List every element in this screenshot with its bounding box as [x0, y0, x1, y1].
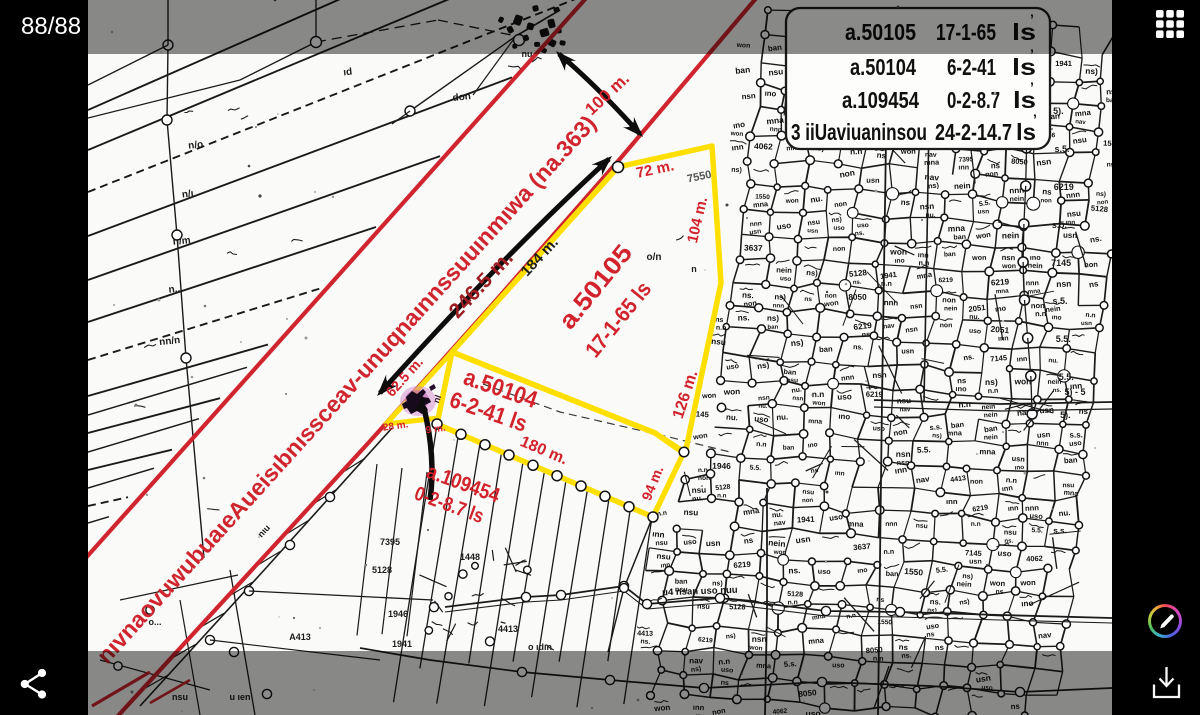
svg-text:5128: 5128: [715, 484, 731, 492]
svg-text:ıd: ıd: [343, 67, 353, 79]
svg-text:uso: uso: [1029, 511, 1043, 521]
svg-text:5128: 5128: [372, 565, 392, 575]
svg-text:5).: 5).: [1060, 410, 1071, 420]
svg-text:non: non: [833, 246, 846, 254]
svg-text:nu.: nu.: [776, 412, 788, 422]
svg-text:mna: mna: [766, 114, 785, 126]
svg-text:mna: mna: [924, 157, 940, 167]
svg-text:ns.: ns.: [1089, 234, 1102, 245]
svg-text:ns: ns: [861, 330, 870, 340]
svg-text:mna: mna: [995, 287, 1009, 295]
svg-text:ns): ns): [985, 377, 998, 387]
svg-text:nnn: nnn: [840, 372, 854, 383]
svg-text:ban: ban: [944, 251, 956, 259]
svg-text:6219: 6219: [733, 560, 752, 570]
svg-text:won: won: [823, 298, 839, 309]
svg-text:usn: usn: [1063, 231, 1078, 240]
svg-text:non: non: [698, 475, 710, 482]
svg-text:ıno: ıno: [857, 567, 868, 575]
svg-text:ınn: ınn: [652, 529, 665, 539]
svg-text:ınn: ınn: [1007, 504, 1018, 513]
svg-text:uso: uso: [818, 566, 832, 576]
svg-text:nsn: nsn: [1002, 253, 1016, 262]
svg-text:n.n: n.n: [1085, 312, 1096, 320]
svg-text:nnn: nnn: [884, 298, 899, 308]
svg-text:6219: 6219: [1054, 182, 1074, 192]
svg-text:ns: ns: [743, 536, 754, 546]
svg-text:won: won: [701, 392, 717, 401]
svg-text:nsn: nsn: [741, 91, 756, 101]
svg-text:nnn: nnn: [1036, 440, 1049, 448]
svg-text:don: don: [452, 91, 471, 104]
svg-text:ınn: ınn: [1001, 483, 1014, 493]
svg-text:nsn: nsn: [872, 370, 887, 380]
svg-text:ns: ns: [1079, 407, 1089, 416]
svg-text:ns.: ns.: [853, 343, 864, 352]
svg-text:6219: 6219: [991, 277, 1010, 287]
svg-text:non: non: [802, 498, 814, 504]
svg-text:ns): ns): [731, 166, 743, 175]
svg-text:uso: uso: [997, 549, 1012, 559]
svg-text:mna: mna: [979, 447, 996, 456]
svg-text:0-2-8.7: 0-2-8.7: [947, 87, 1000, 113]
svg-text:4413: 4413: [637, 629, 653, 638]
svg-text:ns: ns: [1088, 279, 1099, 289]
svg-text:nsu: nsu: [768, 66, 784, 77]
svg-text:uso: uso: [926, 621, 941, 632]
svg-text:usn: usn: [807, 227, 819, 235]
svg-text:5128: 5128: [849, 268, 868, 279]
svg-text:n/ı: n/ı: [181, 188, 194, 200]
svg-text:nnn: nnn: [885, 521, 897, 528]
svg-text:nsn: nsn: [758, 394, 770, 402]
svg-text:ns): ns): [790, 337, 804, 348]
svg-text:nein: nein: [776, 265, 792, 274]
svg-text:ns): ns): [725, 633, 736, 641]
svg-text:nnn: nnn: [1026, 278, 1039, 287]
svg-text:nsu: nsu: [802, 488, 814, 496]
svg-text:’: ’: [1033, 111, 1037, 127]
svg-text:ıno: ıno: [807, 441, 818, 449]
svg-text:4062: 4062: [754, 141, 773, 152]
svg-text:5) - 5: 5) - 5: [1064, 387, 1085, 397]
svg-text:won: won: [773, 549, 787, 556]
svg-text:nsn: nsn: [1036, 156, 1052, 168]
svg-text:nn/n: nn/n: [159, 335, 181, 348]
svg-text:1550: 1550: [1103, 139, 1112, 149]
svg-text:non: non: [985, 171, 998, 179]
svg-text:6219: 6219: [698, 636, 714, 644]
svg-text:ns: ns: [901, 198, 911, 208]
svg-text:A413: A413: [289, 632, 311, 642]
svg-text:ns): ns): [767, 314, 780, 323]
svg-text:mna: mna: [1063, 489, 1079, 498]
svg-text:ns.: ns.: [930, 597, 942, 607]
svg-text:nein: nein: [984, 434, 999, 442]
svg-text:non: non: [1084, 260, 1098, 270]
svg-text:ıno: ıno: [994, 303, 1007, 314]
svg-text:nnn: nnn: [769, 126, 782, 134]
svg-text:5.5.: 5.5.: [935, 564, 948, 574]
svg-text:nsu: nsu: [711, 336, 727, 347]
svg-text:ns): ns): [927, 180, 940, 190]
svg-text:ınn: ınn: [958, 163, 969, 171]
svg-text:ns: ns: [810, 467, 819, 475]
svg-text:nnn: nnn: [772, 302, 784, 310]
svg-text:uso: uso: [726, 362, 740, 372]
svg-text:ınn: ınn: [894, 465, 908, 476]
svg-text:s.s.: s.s.: [929, 422, 942, 432]
svg-text:2051: 2051: [990, 324, 1010, 336]
svg-text:n.n: n.n: [787, 599, 797, 606]
svg-text:mna: mna: [948, 223, 966, 234]
svg-text:ban: ban: [783, 445, 795, 452]
svg-text:nein: nein: [1002, 230, 1020, 240]
svg-text:ınn: ınn: [998, 335, 1009, 343]
svg-text:ıno: ıno: [1051, 314, 1061, 322]
svg-text:nnn: nnn: [750, 220, 762, 228]
svg-text:mna: mna: [753, 199, 770, 209]
svg-text:mna: mna: [947, 428, 963, 437]
svg-text:n.n: n.n: [698, 467, 708, 474]
svg-text:1946: 1946: [388, 609, 408, 619]
svg-text:ns: ns: [995, 589, 1003, 596]
svg-text:4062: 4062: [1026, 554, 1043, 564]
svg-text:1946: 1946: [712, 461, 731, 471]
svg-text:s.5.: s.5.: [1052, 220, 1067, 230]
svg-text:5128: 5128: [1090, 203, 1109, 214]
svg-text:ban: ban: [886, 570, 899, 578]
svg-text:nein: nein: [944, 305, 957, 312]
svg-text:nsu: nsu: [786, 377, 798, 384]
svg-text:won: won: [1001, 263, 1016, 270]
svg-text:uso: uso: [837, 392, 852, 402]
svg-text:uso: uso: [969, 328, 982, 336]
svg-text:nu.: nu.: [692, 493, 704, 503]
svg-text:ıno: ıno: [764, 89, 776, 99]
svg-text:n.n: n.n: [971, 521, 981, 528]
svg-text:nav: nav: [883, 322, 895, 330]
svg-text:won: won: [785, 198, 799, 205]
svg-text:ns): ns): [831, 216, 842, 224]
svg-text:usn: usn: [1037, 430, 1052, 440]
svg-text:won: won: [989, 578, 1006, 588]
svg-text:1941: 1941: [797, 515, 816, 525]
svg-text:nsn: nsn: [1056, 278, 1071, 289]
svg-text:5.5.: 5.5.: [1059, 372, 1074, 382]
svg-text:won: won: [971, 254, 986, 262]
svg-text:n.n: n.n: [716, 325, 727, 332]
svg-text:24-2-14.7: 24-2-14.7: [935, 119, 1012, 145]
svg-text:n.n: n.n: [717, 492, 727, 499]
svg-text:ns: ns: [804, 296, 812, 303]
svg-text:3637: 3637: [744, 242, 763, 252]
svg-text:usn: usn: [795, 533, 811, 545]
svg-text:nav: nav: [773, 519, 786, 527]
svg-text:n.n: n.n: [958, 400, 971, 410]
svg-text:7145: 7145: [965, 548, 982, 558]
svg-text:ns): ns): [756, 360, 770, 371]
svg-text:n: n: [691, 264, 697, 274]
svg-text:6219: 6219: [938, 277, 953, 284]
svg-text:7145: 7145: [990, 353, 1008, 364]
svg-text:nein: nein: [954, 181, 971, 191]
svg-text:usn: usn: [706, 539, 721, 548]
svg-text:4413: 4413: [498, 624, 518, 634]
svg-text:ns.: ns.: [737, 312, 749, 322]
svg-text:5.5.: 5.5.: [1031, 527, 1043, 534]
svg-text:usn: usn: [969, 558, 982, 566]
svg-text:won: won: [729, 130, 743, 138]
svg-text:ınn: ınn: [834, 470, 845, 478]
svg-text:ns): ns): [959, 598, 970, 606]
svg-text:ıno: ıno: [955, 384, 967, 393]
svg-text:ns): ns): [1096, 191, 1106, 199]
svg-text:won: won: [1019, 578, 1036, 588]
svg-text:5.5.: 5.5.: [1056, 334, 1071, 344]
svg-text:nsn: nsn: [910, 303, 923, 311]
svg-text:non: non: [743, 298, 757, 309]
svg-text:n.n: n.n: [988, 388, 999, 396]
svg-text:5).: 5).: [1053, 106, 1064, 116]
svg-text:ıno: ıno: [838, 412, 851, 422]
svg-text:ns: ns: [1042, 187, 1053, 197]
svg-text:nu.: nu.: [1058, 508, 1071, 518]
svg-text:6-2-41: 6-2-41: [947, 54, 996, 80]
svg-text:ınn: ınn: [660, 562, 670, 570]
svg-text:a.109454: a.109454: [842, 87, 919, 113]
svg-text:5128: 5128: [729, 602, 746, 611]
svg-text:nav: nav: [1075, 119, 1087, 126]
svg-text:ns.: ns.: [788, 565, 800, 575]
svg-text:nein: nein: [1009, 195, 1024, 204]
svg-text:nsn: nsn: [792, 395, 804, 403]
svg-text:ns.: ns.: [854, 230, 865, 238]
svg-text:s.5.: s.5.: [1053, 296, 1068, 306]
svg-text:s.s.: s.s.: [1053, 526, 1067, 535]
svg-text:ıno: ıno: [895, 257, 905, 264]
svg-text:’: ’: [1030, 79, 1034, 95]
svg-text:7395: 7395: [380, 537, 400, 547]
svg-text:usn: usn: [1011, 454, 1025, 464]
svg-text:ıno: ıno: [1014, 464, 1024, 472]
svg-text:nsu: nsu: [1004, 527, 1017, 536]
svg-text:mna: mna: [847, 519, 864, 529]
svg-text:ns): ns): [1085, 66, 1098, 77]
svg-text:8050: 8050: [848, 293, 867, 302]
svg-text:ns: ns: [926, 631, 935, 639]
svg-text:mna: mna: [808, 636, 825, 647]
svg-text:n/o: n/o: [188, 139, 204, 152]
svg-text:ban: ban: [953, 234, 966, 242]
svg-text:usn: usn: [901, 346, 914, 355]
svg-text:ban: ban: [819, 344, 833, 354]
svg-text:1941: 1941: [392, 639, 412, 649]
svg-text:1550: 1550: [904, 566, 924, 578]
svg-text:ban: ban: [767, 324, 778, 331]
svg-text:1448: 1448: [460, 552, 480, 562]
svg-text:non: non: [1041, 197, 1052, 204]
svg-text:won: won: [811, 399, 826, 407]
svg-text:ns.: ns.: [963, 352, 975, 362]
svg-text:nav: nav: [1038, 630, 1053, 640]
svg-text:n.n: n.n: [883, 548, 894, 556]
svg-text:ban: ban: [735, 64, 751, 76]
svg-text:non: non: [942, 295, 957, 305]
svg-text:ns): ns): [774, 292, 786, 301]
svg-text:won: won: [723, 387, 741, 397]
svg-text:n.n: n.n: [812, 389, 825, 399]
svg-text:nsu: nsu: [683, 508, 698, 518]
svg-text:nu.: nu.: [726, 413, 738, 423]
svg-text:mna: mna: [1074, 108, 1091, 119]
svg-text:nein: nein: [984, 411, 998, 419]
svg-text:ns.: ns.: [640, 638, 651, 646]
svg-text:nein: nein: [768, 537, 786, 549]
svg-text:ns): ns): [806, 268, 819, 278]
svg-text:o/n: o/n: [647, 252, 662, 263]
svg-text:usn: usn: [1081, 320, 1092, 327]
svg-text:ban: ban: [783, 367, 797, 377]
svg-text:nein: nein: [956, 579, 971, 589]
svg-text:nsu: nsu: [656, 551, 671, 561]
svg-text:uso: uso: [833, 225, 845, 232]
svg-text:ınn: ınn: [731, 142, 744, 152]
svg-text:ıno: ıno: [732, 120, 745, 131]
svg-text:3 iiUaviuaninsou: 3 iiUaviuaninsou: [791, 119, 927, 145]
svg-text:mna: mna: [808, 418, 822, 426]
svg-text:nav: nav: [915, 474, 930, 485]
svg-text:nsu: nsu: [915, 522, 927, 530]
svg-text:won: won: [889, 247, 907, 257]
svg-text:nu.: nu.: [758, 404, 768, 410]
svg-text:nein: nein: [1028, 260, 1043, 270]
svg-text:5.5.: 5.5.: [749, 465, 761, 473]
svg-text:3637: 3637: [853, 542, 872, 553]
svg-text:uso: uso: [779, 275, 791, 283]
svg-text:ınn: ınn: [1016, 355, 1027, 364]
svg-text:non: non: [940, 322, 952, 329]
svg-text:5.5.: 5.5.: [917, 445, 931, 455]
svg-text:s.5.: s.5.: [1055, 144, 1070, 154]
svg-text:ns.: ns.: [853, 279, 862, 287]
svg-text:5128: 5128: [787, 590, 803, 599]
svg-text:usn: usn: [978, 208, 990, 215]
svg-text:uso: uso: [872, 425, 885, 433]
svg-text:mna: mna: [1027, 287, 1041, 295]
svg-text:7145: 7145: [1051, 258, 1071, 268]
svg-text:non: non: [970, 479, 983, 486]
svg-text:6219: 6219: [866, 390, 883, 399]
svg-text:uso: uso: [1069, 439, 1083, 448]
svg-text:ns.: ns.: [1053, 388, 1062, 394]
svg-text:usn: usn: [866, 176, 880, 185]
svg-text:ıno: ıno: [1021, 599, 1034, 609]
svg-text:ns): ns): [932, 432, 942, 440]
svg-text:uso: uso: [857, 222, 869, 229]
svg-text:ban: ban: [1064, 455, 1079, 465]
svg-text:nu.: nu.: [969, 314, 980, 321]
svg-text:nsu: nsu: [1066, 209, 1081, 219]
svg-text:n.n: n.n: [756, 441, 767, 449]
svg-text:nu.: nu.: [1048, 357, 1058, 365]
svg-text:ınn: ınn: [946, 497, 958, 506]
svg-text:n.n: n.n: [881, 279, 893, 288]
svg-text:nsu: nsu: [655, 540, 668, 548]
svg-text:ban: ban: [675, 577, 688, 586]
svg-text:1941: 1941: [1055, 59, 1072, 68]
svg-text:a.50104: a.50104: [850, 54, 916, 80]
